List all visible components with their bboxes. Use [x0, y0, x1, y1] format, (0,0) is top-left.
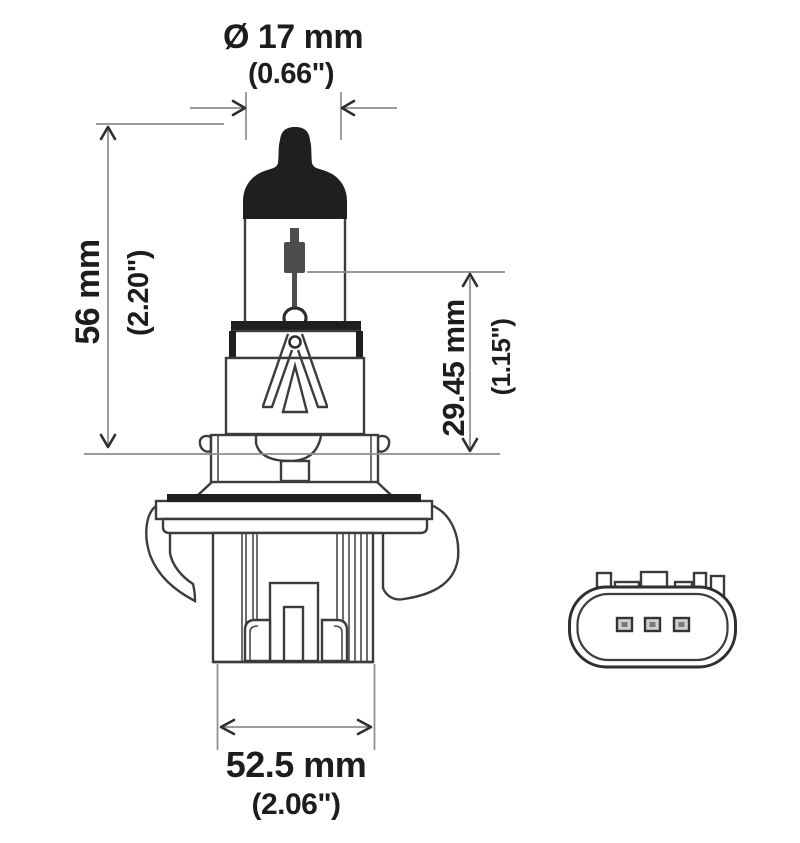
length-label-mm: 56 mm	[69, 239, 107, 344]
diameter-label-in: (0.66")	[248, 58, 334, 90]
dimension-width: 52.5 mm (2.06")	[218, 664, 375, 821]
technical-drawing-page: Ø 17 mm (0.66") 56 mm (2.20") 29.45 mm (…	[0, 0, 800, 843]
collar	[198, 435, 391, 495]
width-label-in: (2.06")	[251, 788, 340, 821]
filament-label-mm: 29.45 mm	[436, 299, 471, 436]
width-label-mm: 52.5 mm	[226, 744, 367, 785]
bulb-technical-diagram: Ø 17 mm (0.66") 56 mm (2.20") 29.45 mm (…	[0, 0, 800, 843]
filament	[284, 228, 306, 328]
length-label-in: (2.20")	[123, 250, 155, 336]
bulb-drawing	[146, 127, 458, 662]
connector-pins	[617, 618, 689, 631]
plug-body	[213, 533, 373, 662]
mounting-flange	[156, 494, 432, 533]
connector-drawing	[570, 572, 736, 667]
diameter-label-mm: Ø 17 mm	[223, 18, 363, 56]
dimension-diameter: Ø 17 mm (0.66")	[190, 18, 397, 140]
filament-label-in: (1.15")	[486, 319, 516, 396]
black-tip	[243, 127, 347, 219]
